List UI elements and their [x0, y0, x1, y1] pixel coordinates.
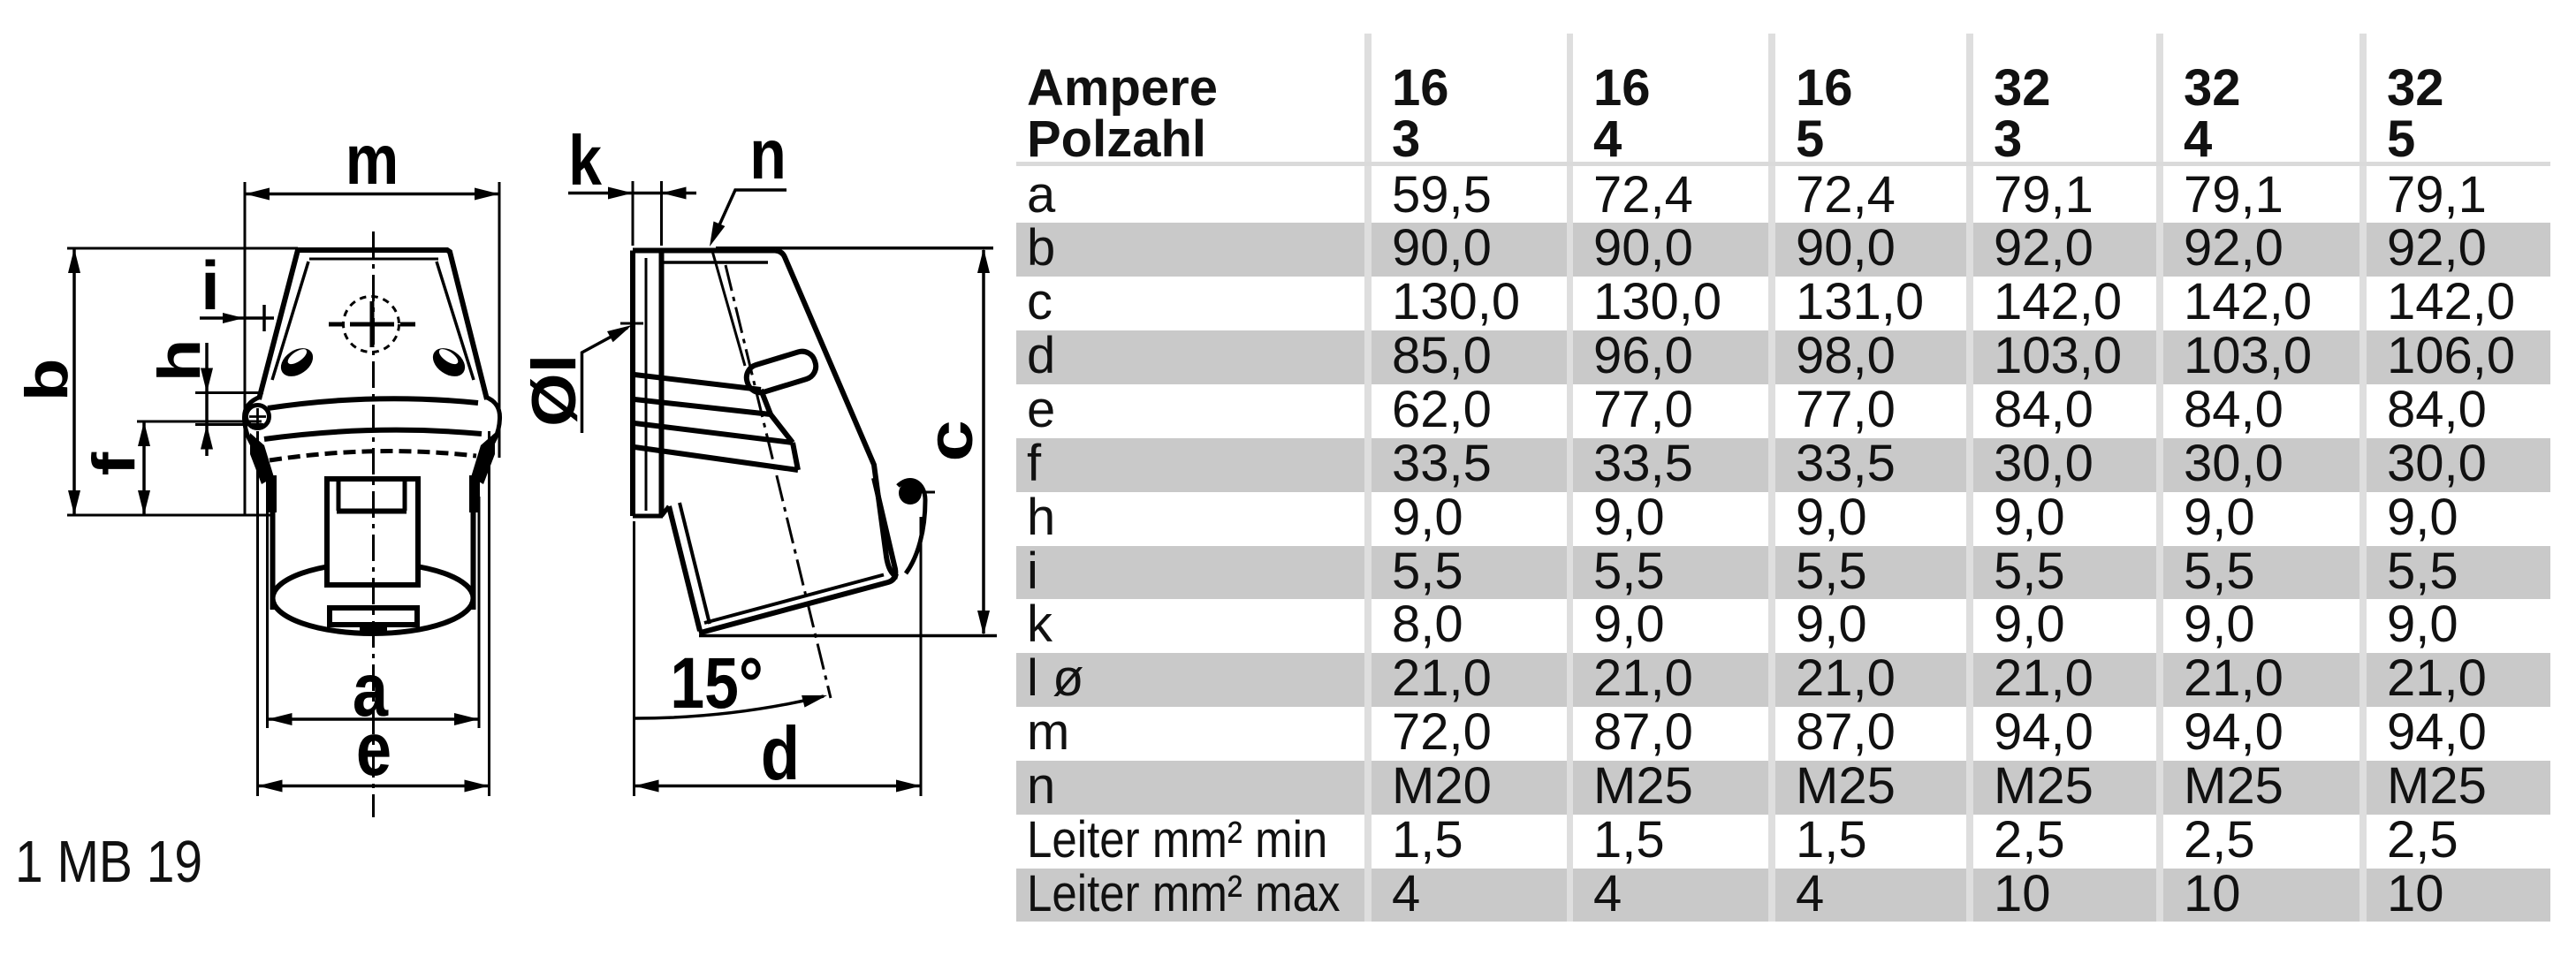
svg-text:Øl: Øl — [520, 354, 589, 427]
svg-text:k: k — [568, 121, 602, 200]
svg-text:c: c — [915, 420, 986, 461]
svg-text:e: e — [356, 707, 391, 791]
svg-text:m: m — [346, 120, 399, 199]
svg-text:d: d — [761, 711, 800, 795]
svg-text:i: i — [201, 247, 220, 324]
svg-text:b: b — [13, 359, 80, 402]
svg-text:f: f — [80, 451, 148, 475]
svg-text:n: n — [749, 115, 786, 193]
